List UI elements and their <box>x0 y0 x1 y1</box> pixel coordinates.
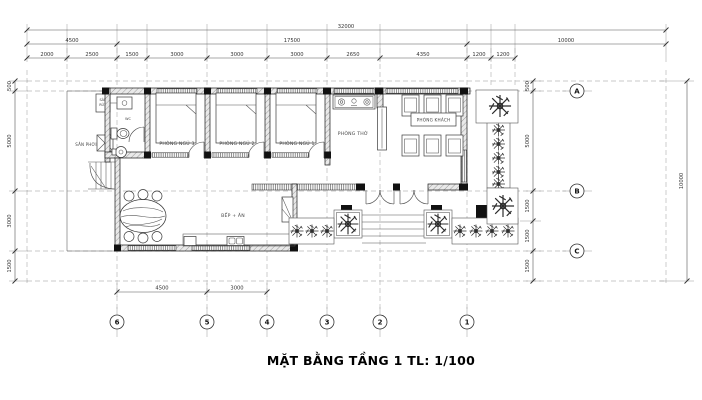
dim-row3-0: 2000 <box>40 52 53 58</box>
dim-left-1: 5000 <box>7 134 13 147</box>
dim-left-0: 500 <box>7 81 13 91</box>
kitchen-dining: BẾP + ĂN <box>120 190 295 247</box>
floor-plan-drawing: 32000 4500 17500 10000 2000 2500 1500 30… <box>0 0 702 400</box>
room-label-wc: WC <box>125 117 131 121</box>
dim-left-3: 1500 <box>7 259 13 272</box>
grid-number-2: 2 <box>378 319 383 327</box>
dim-right-inner-1: 5000 <box>525 134 531 147</box>
dim-row3-4: 3000 <box>230 52 243 58</box>
dim-row3-9: 1200 <box>496 52 509 58</box>
dim-row3-3: 3000 <box>170 52 183 58</box>
living-room: PHÒNG KHÁCH <box>402 95 463 156</box>
room-label-worship: PHÒNG THỜ <box>338 130 369 137</box>
grid-number-1: 1 <box>465 319 470 327</box>
dim-right-inner-0: 500 <box>525 81 531 91</box>
dim-row3-1: 2500 <box>85 52 98 58</box>
staircase <box>88 162 117 189</box>
dim-row2-2: 10000 <box>558 38 575 44</box>
dim-row3-6: 2650 <box>346 52 359 58</box>
grid-number-6: 6 <box>115 319 120 327</box>
dim-total-width: 32000 <box>338 24 355 30</box>
dim-row3-5: 3000 <box>290 52 303 58</box>
dim-row3-2: 1500 <box>125 52 138 58</box>
room-label-san-phoi: SÂN PHƠI <box>75 142 96 147</box>
grid-markers-numbers: 6 5 4 3 2 1 <box>110 307 474 337</box>
dim-left-2: 3000 <box>7 214 13 227</box>
dimensions-left: 500 5000 3000 1500 <box>7 79 28 284</box>
dim-row2-1: 17500 <box>284 38 301 44</box>
grid-markers-letters: A B C <box>562 84 592 258</box>
armchairs-bottom <box>402 135 463 156</box>
dim-right-inner-4: 1500 <box>525 259 531 272</box>
dim-right-outer: 10000 <box>679 173 685 190</box>
dim-bottom-0: 4500 <box>155 286 168 292</box>
grid-number-5: 5 <box>205 319 210 327</box>
drawing-title: MẶT BẰNG TẦNG 1 TL: 1/100 <box>267 351 475 368</box>
grid-number-3: 3 <box>325 319 330 327</box>
grid-dashed-lines <box>27 48 666 312</box>
dimensions-bottom: 4500 3000 <box>115 283 270 297</box>
dim-row3-7: 4350 <box>416 52 429 58</box>
grid-letter-c: C <box>574 248 579 256</box>
dim-bottom-1: 3000 <box>230 286 243 292</box>
dimensions-top: 32000 4500 17500 10000 2000 2500 1500 30… <box>25 24 669 62</box>
dim-row2-0: 4500 <box>65 38 78 44</box>
dim-right-inner-3: 1500 <box>525 229 531 242</box>
bedroom-2: PHÒNG NGỦ 2 <box>216 93 256 147</box>
bedroom-1: PHÒNG NGỦ 1 <box>276 93 316 147</box>
grid-letter-a: A <box>574 88 580 96</box>
dim-row3-8: 1200 <box>472 52 485 58</box>
dimensions-right-outer: 10000 <box>660 79 694 284</box>
dim-right-inner-2: 1500 <box>525 199 531 212</box>
grid-letter-b: B <box>574 188 579 196</box>
floor-plan-sheet: 32000 4500 17500 10000 2000 2500 1500 30… <box>0 0 702 400</box>
room-label-living: PHÒNG KHÁCH <box>417 118 451 123</box>
room-label-kitchen: BẾP + ĂN <box>221 211 245 219</box>
grid-number-4: 4 <box>265 319 270 327</box>
bedroom-3: PHÒNG NGỦ 3 <box>156 93 196 147</box>
dimensions-right-inner: 500 5000 1500 1500 1500 <box>520 79 541 284</box>
